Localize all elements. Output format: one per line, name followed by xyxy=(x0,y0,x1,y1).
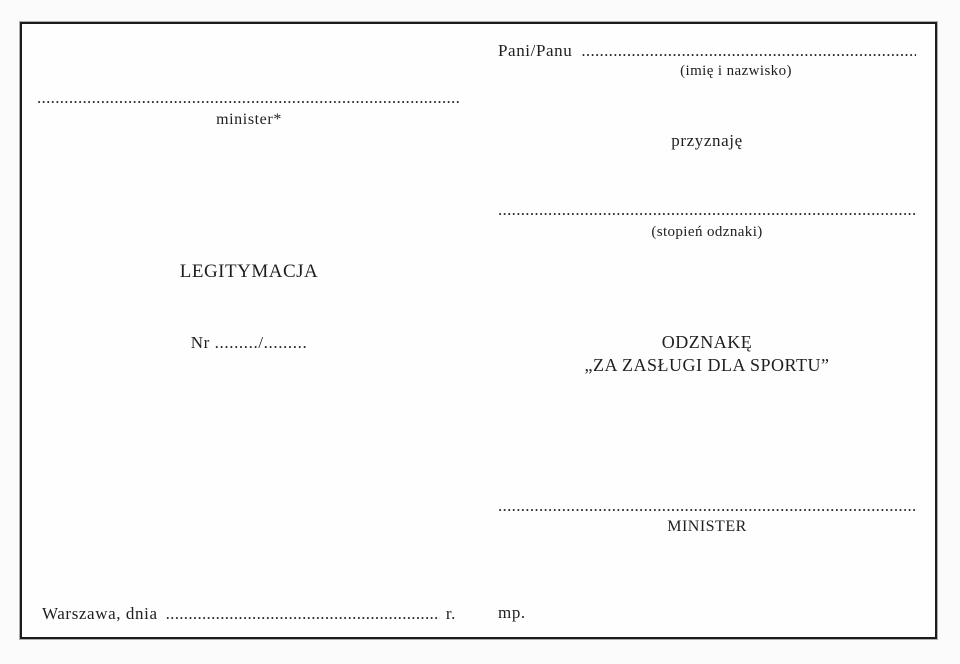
document-page: ........................................… xyxy=(0,0,960,664)
recipient-caption: (imię i nazwisko) xyxy=(498,61,916,81)
badge-name-line1: ODZNAKĘ xyxy=(498,331,916,354)
document-title: LEGITYMACJA xyxy=(37,260,461,284)
credential-card-border: ........................................… xyxy=(20,22,937,639)
issue-date-suffix: r. xyxy=(446,603,456,625)
recipient-prefix: Pani/Panu xyxy=(498,40,572,62)
issue-date-prefix: Warszawa, dnia xyxy=(42,603,158,625)
issue-date-fill-line: ........................................… xyxy=(166,603,440,625)
signature-caption: MINISTER xyxy=(498,517,916,537)
issue-date-row: Warszawa, dnia .........................… xyxy=(42,603,456,625)
recipient-name-fill-line: ........................................… xyxy=(581,40,916,62)
issuer-caption: minister* xyxy=(37,110,461,130)
issuer-fill-line: ........................................… xyxy=(37,88,461,108)
grant-verb: przyznaję xyxy=(498,130,916,152)
badge-name-line2: „ZA ZASŁUGI DLA SPORTU” xyxy=(498,354,916,377)
badge-degree-fill-line: ........................................… xyxy=(498,200,916,220)
seal-abbreviation: mp. xyxy=(498,602,526,624)
badge-name-block: ODZNAKĘ „ZA ZASŁUGI DLA SPORTU” xyxy=(498,331,916,377)
signature-fill-line: ........................................… xyxy=(498,496,916,516)
badge-degree-caption: (stopień odznaki) xyxy=(498,222,916,242)
recipient-row: Pani/Panu ..............................… xyxy=(498,40,916,62)
credential-number-line: Nr ........./......... xyxy=(37,332,461,354)
